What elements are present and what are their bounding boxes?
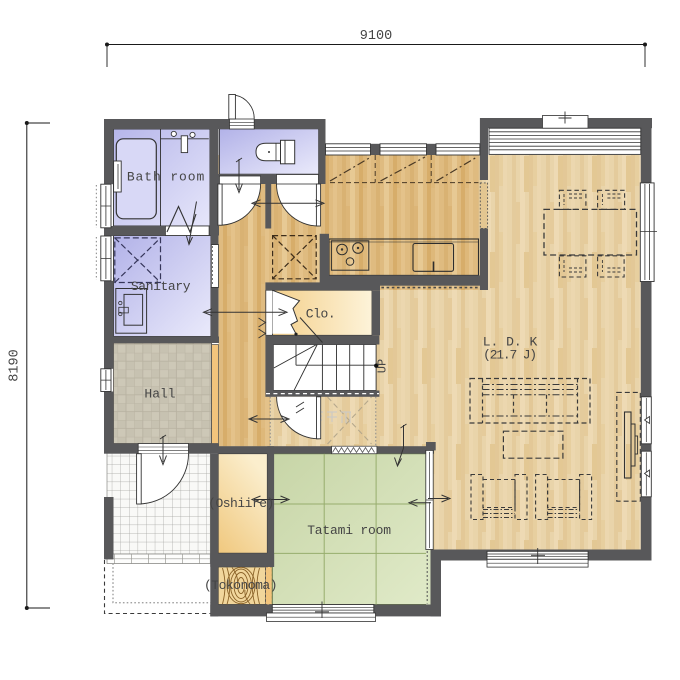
svg-text:(Tokonoma): (Tokonoma) — [204, 578, 277, 593]
svg-text:UP: UP — [376, 359, 390, 373]
svg-text:Hall: Hall — [144, 387, 175, 402]
svg-text:Tatami room: Tatami room — [307, 523, 391, 538]
svg-text:(21.7 J): (21.7 J) — [483, 348, 536, 363]
svg-text:Bath room: Bath room — [127, 170, 205, 185]
svg-text:Clo.: Clo. — [306, 307, 336, 322]
svg-text:Sanitary: Sanitary — [131, 279, 191, 294]
svg-text:8190: 8190 — [8, 349, 23, 381]
svg-text:(Oshiire): (Oshiire) — [208, 496, 274, 511]
svg-text:9100: 9100 — [360, 29, 392, 44]
